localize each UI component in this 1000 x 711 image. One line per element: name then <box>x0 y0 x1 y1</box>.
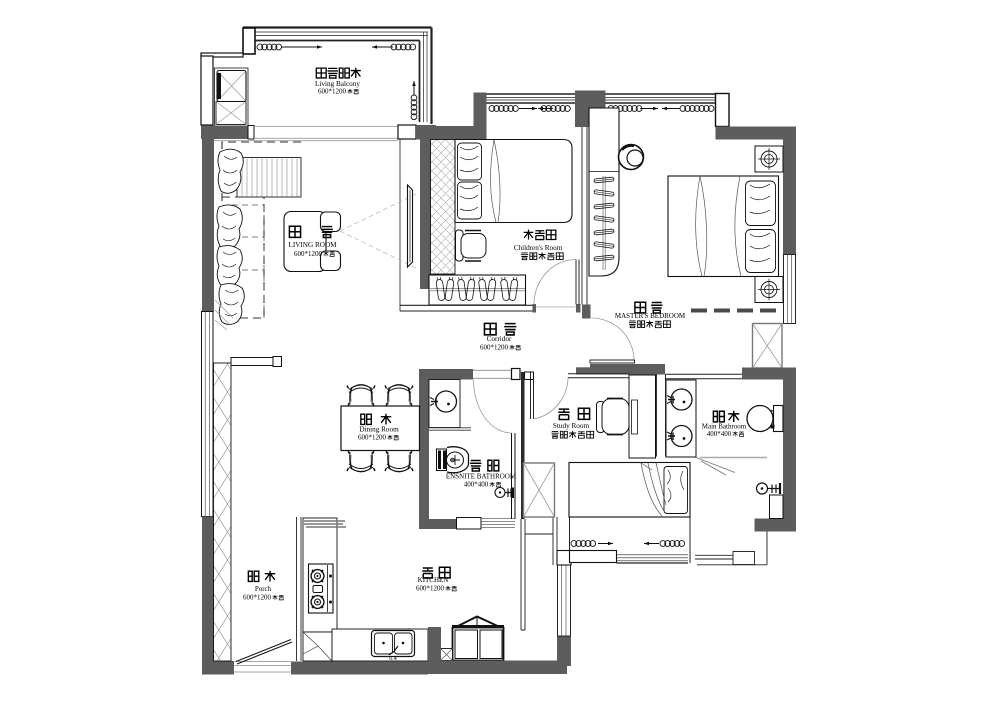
svg-text:600*1200: 600*1200 <box>294 250 323 258</box>
svg-text:MASTER'S BEDROOM: MASTER'S BEDROOM <box>615 312 686 320</box>
svg-text:6.4: 6.4 <box>389 656 397 662</box>
svg-text:Dining Room: Dining Room <box>359 426 399 434</box>
svg-text:ENSNITE BATHROOM: ENSNITE BATHROOM <box>446 473 517 481</box>
svg-text:600*1200: 600*1200 <box>416 585 445 593</box>
svg-text:KITCHEN: KITCHEN <box>418 576 449 584</box>
svg-text:600*1200: 600*1200 <box>318 88 347 96</box>
svg-text:Porch: Porch <box>255 585 272 593</box>
svg-text:Corridor: Corridor <box>487 335 512 343</box>
svg-text:400*400: 400*400 <box>707 430 732 438</box>
svg-text:Children's Room: Children's Room <box>514 244 563 252</box>
svg-text:600*1200: 600*1200 <box>243 594 272 602</box>
svg-text:Study Room: Study Room <box>553 422 590 430</box>
svg-text:600*1200: 600*1200 <box>358 434 387 442</box>
svg-text:LIVING ROOM: LIVING ROOM <box>288 241 337 249</box>
svg-text:400*400: 400*400 <box>464 481 489 489</box>
svg-text:600*1200: 600*1200 <box>480 344 509 352</box>
